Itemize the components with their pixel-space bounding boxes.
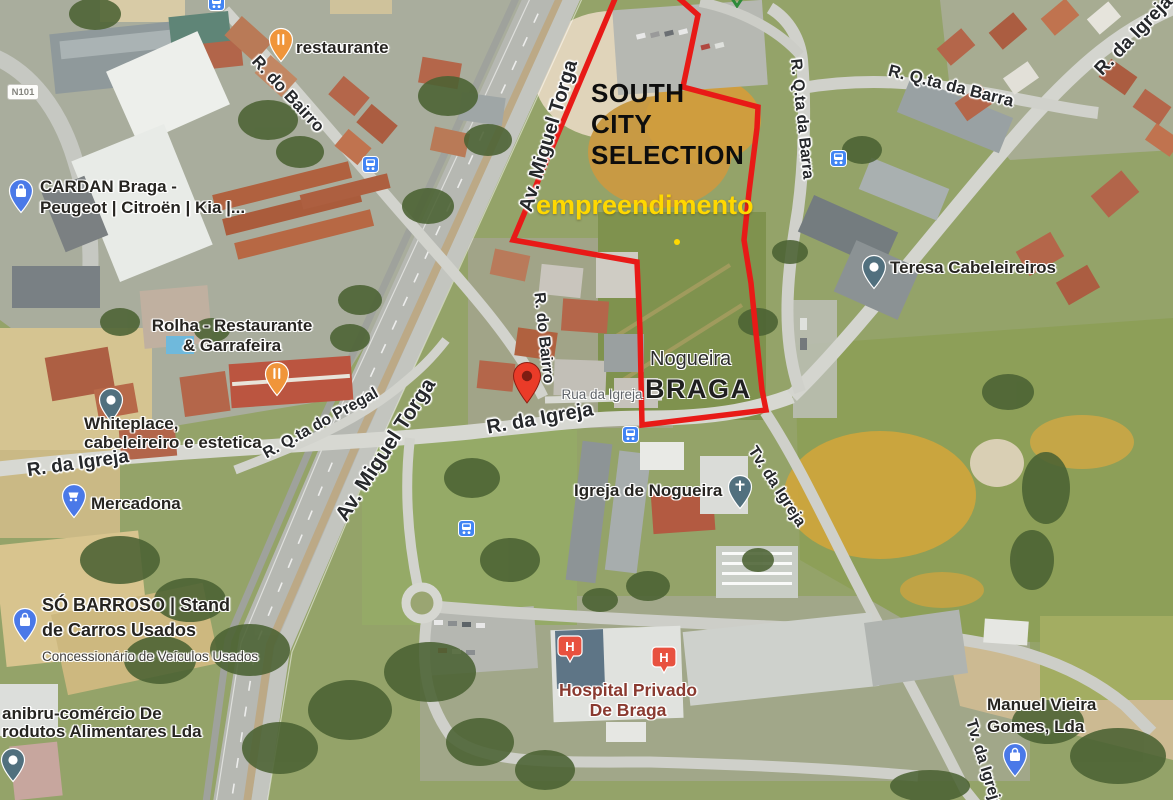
- shopping-pin-icon[interactable]: [12, 607, 38, 643]
- bus-stop-icon[interactable]: [622, 426, 639, 443]
- svg-text:H: H: [565, 639, 574, 654]
- poi-label-restaurante[interactable]: restaurante: [296, 38, 389, 58]
- street-label-rua-da-igreja: Rua da Igreja: [561, 387, 642, 403]
- shopping-pin-icon[interactable]: [8, 178, 34, 214]
- poi-label-hospital-privado[interactable]: Hospital Privado De Braga: [559, 680, 697, 720]
- restaurant-pin-icon[interactable]: [268, 27, 294, 63]
- locality-label-nogueira: Nogueira: [650, 348, 731, 371]
- poi-label-so-barroso[interactable]: SÓ BARROSO | Stand de Carros Usados Conc…: [42, 593, 258, 669]
- park-icon[interactable]: [729, 0, 745, 8]
- hospital-pin-icon[interactable]: H: [651, 646, 677, 678]
- poi-label-mercadona[interactable]: Mercadona: [91, 494, 181, 514]
- bus-stop-icon[interactable]: [362, 156, 379, 173]
- shopping-pin-icon[interactable]: [1002, 742, 1028, 778]
- bus-stop-icon[interactable]: [830, 150, 847, 167]
- poi-label-igreja-de-nogueira[interactable]: Igreja de Nogueira: [574, 481, 722, 501]
- bus-stop-icon[interactable]: [208, 0, 225, 11]
- annotation-title: SOUTH CITY SELECTION: [591, 78, 744, 171]
- place-pin-icon[interactable]: [0, 747, 26, 783]
- poi-label-whiteplace[interactable]: Whiteplace, cabeleireiro e estetica: [84, 414, 262, 452]
- poi-label-rolha[interactable]: Rolha - Restaurante & Garrafeira: [152, 316, 313, 356]
- poi-label-sanibru[interactable]: anibru-comércio De rodutos Alimentares L…: [2, 705, 202, 741]
- church-pin-icon[interactable]: [727, 474, 753, 510]
- bus-stop-icon[interactable]: [458, 520, 475, 537]
- site-dot: [674, 239, 680, 245]
- poi-label-teresa[interactable]: Teresa Cabeleireiros: [890, 258, 1056, 278]
- city-label-braga: BRAGA: [645, 374, 752, 405]
- place-pin-icon[interactable]: [861, 254, 887, 290]
- annotation-subtitle: empreendimento: [536, 190, 754, 221]
- restaurant-pin-icon[interactable]: [264, 361, 290, 397]
- route-badge-n101: N101: [7, 84, 39, 100]
- svg-text:H: H: [659, 650, 668, 665]
- map-canvas: N101: [0, 0, 1173, 800]
- poi-label-manuel-vieira[interactable]: Manuel Vieira Gomes, Lda: [987, 694, 1096, 738]
- shopping-cart-pin-icon[interactable]: [61, 483, 87, 519]
- hospital-pin-icon[interactable]: H: [557, 635, 583, 667]
- poi-label-cardan[interactable]: CARDAN Braga - Peugeot | Citroën | Kia |…: [40, 176, 245, 218]
